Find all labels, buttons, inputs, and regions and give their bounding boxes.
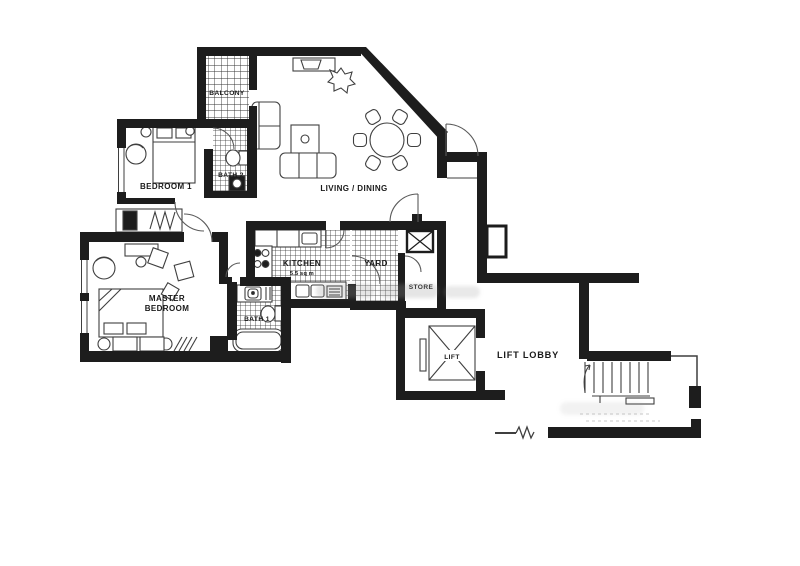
bath2-label: BATH 2 [218,172,244,179]
rug [174,337,197,351]
side-table [98,338,110,350]
yard-label: YARD [364,259,388,268]
balcony-floor [206,56,249,120]
toilet-tank [275,306,282,321]
bedside-table [141,127,151,137]
master-window [82,260,88,293]
floor-plan-drawing: BALCONY BEDROOM 1 BATH 2 LIVING / DINING… [0,0,800,566]
chair [174,261,194,281]
faint-detail [580,414,660,421]
lift-label: LIFT [444,354,460,361]
coffee-table [291,125,319,153]
master-bedroom-label-line1: MASTER [149,294,185,303]
lobby-pier [487,226,506,257]
wall-break-symbol [516,427,534,438]
stool [136,257,146,267]
basin [233,179,242,188]
store-door [405,256,421,272]
entrance-door [446,124,478,156]
tv [301,60,321,69]
floor-plan-page: BALCONY BEDROOM 1 BATH 2 LIVING / DINING… [0,0,800,566]
kitchen-area-label: 5.5 sq m [290,271,314,277]
bath1-label: BATH 1 [244,316,270,323]
living-dining-label: LIVING / DINING [320,184,387,193]
stair-landing-wall [671,356,697,388]
stair-treads [585,362,648,393]
bath1-door [226,263,240,277]
sofa-3seat [280,153,336,178]
balcony-label: BALCONY [209,90,245,97]
master-bedroom-label-line2: BEDROOM [145,304,190,313]
plant [328,68,355,93]
dining-table [370,123,404,157]
kitchen-label: KITCHEN [283,259,321,268]
lift-door [420,339,426,371]
living-furniture [252,58,421,178]
toilet [226,150,240,166]
bedroom1-window [119,148,125,192]
bedroom1-furniture [116,125,195,232]
lamp [186,127,194,135]
master-door [184,214,212,242]
master-window [82,301,88,333]
bedroom1-label: BEDROOM 1 [140,182,192,191]
duct [407,231,433,252]
lift-lobby-label: LIFT LOBBY [497,350,559,360]
